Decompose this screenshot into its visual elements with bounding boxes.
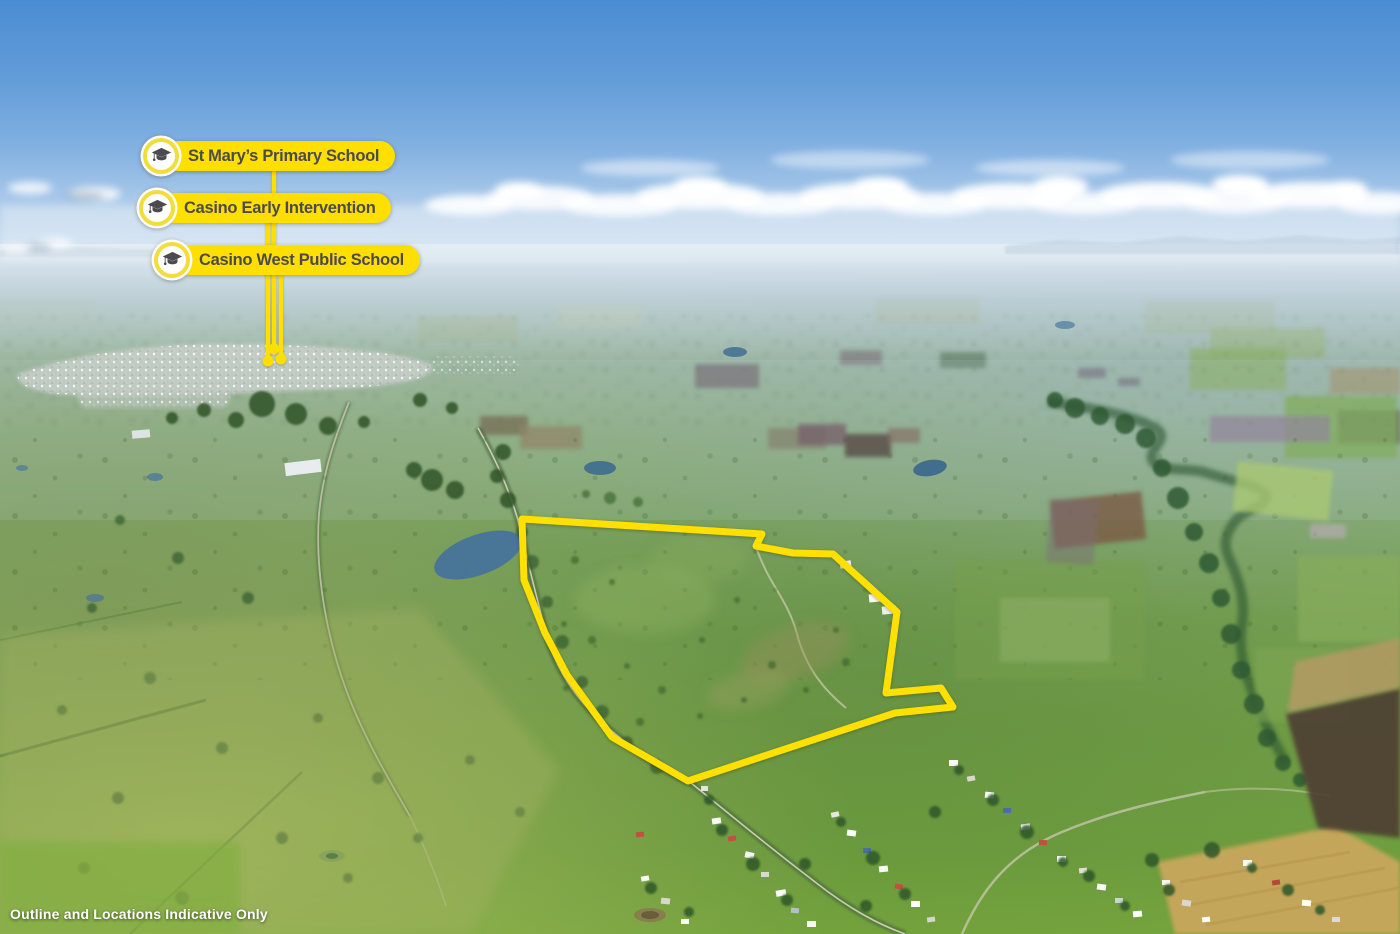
marker-st-marys-primary-school: St Mary’s Primary School xyxy=(143,138,395,174)
marker-casino-west-public-school: Casino West Public School xyxy=(154,242,420,278)
marker-label: Casino Early Intervention xyxy=(160,193,391,223)
aerial-property-map: St Mary’s Primary School Casino Early In… xyxy=(0,0,1400,934)
marker-casino-early-intervention: Casino Early Intervention xyxy=(139,190,391,226)
graduation-cap-icon xyxy=(143,138,179,174)
graduation-cap-icon xyxy=(154,242,190,278)
marker-label: St Mary’s Primary School xyxy=(164,141,395,171)
disclaimer-text: Outline and Locations Indicative Only xyxy=(10,906,268,922)
graduation-cap-icon xyxy=(139,190,175,226)
marker-label: Casino West Public School xyxy=(175,245,420,275)
